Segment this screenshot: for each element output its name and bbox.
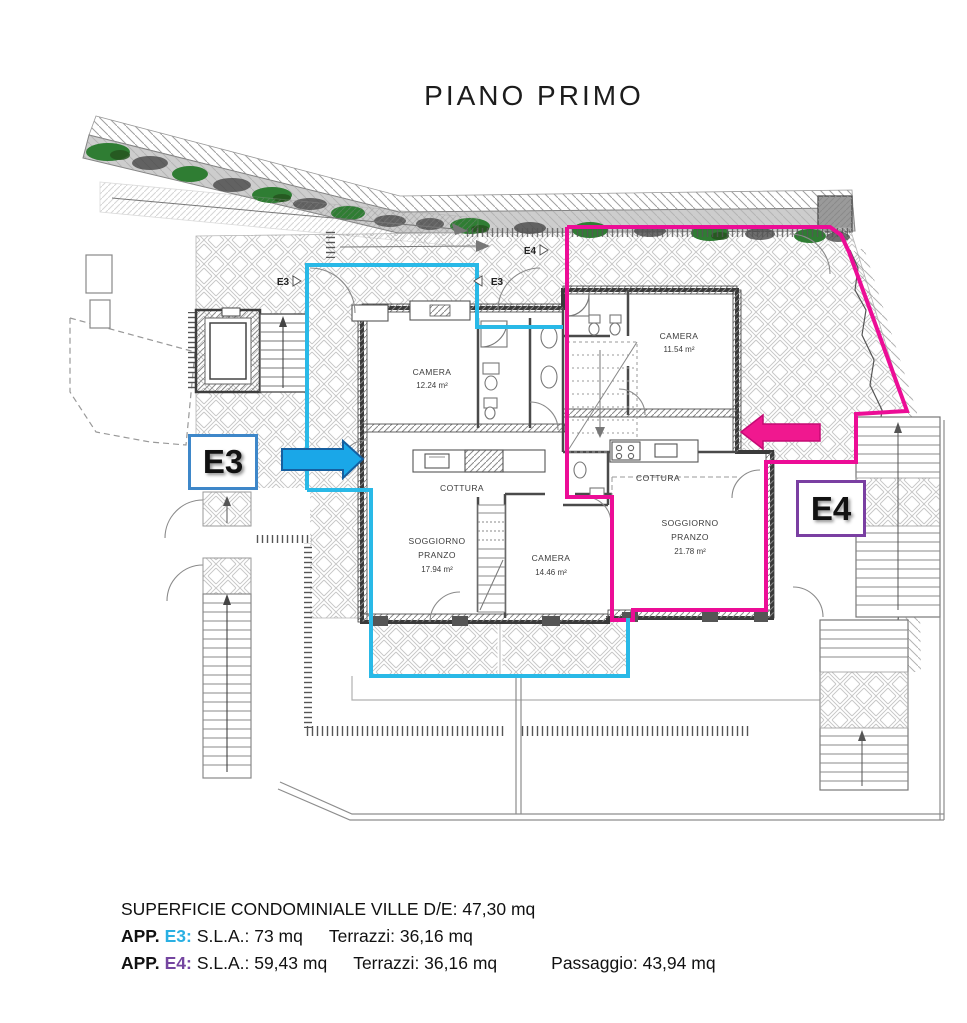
room-area-e4-camera: 11.54 m² [664, 345, 695, 354]
terrace-edge-strip [467, 228, 848, 237]
kitchen-e4 [610, 440, 698, 462]
legend-e3-terrazzi: Terrazzi: 36,16 mq [329, 926, 473, 946]
room-label-e3-soggiorno-1: SOGGIORNO [409, 536, 466, 546]
unit-box-e3: E3 [188, 434, 258, 490]
room-label-e4-soggiorno-1: SOGGIORNO [662, 518, 719, 528]
legend-app-label-e3: APP. [121, 926, 160, 946]
stairs-e3-internal [478, 505, 505, 612]
room-area-e3-camera1: 12.24 m² [416, 381, 448, 390]
room-area-e3-soggiorno: 17.94 m² [421, 565, 453, 574]
stairs-upper-left [260, 314, 306, 392]
legend-line-e3: APP.E3:S.L.A.: 73 mqTerrazzi: 36,16 mq [121, 923, 721, 950]
room-label-e3-camera1: CAMERA [413, 367, 452, 377]
room-area-e4-soggiorno: 21.78 m² [674, 547, 706, 556]
room-area-e3-camera2: 14.46 m² [535, 568, 567, 577]
legend: SUPERFICIE CONDOMINIALE VILLE D/E: 47,30… [121, 896, 721, 977]
legend-app-label-e4: APP. [121, 953, 160, 973]
legend-e3-sla: S.L.A.: 73 mq [197, 926, 303, 946]
marker-e3-left: E3 [277, 277, 290, 288]
legend-e4-terrazzi: Terrazzi: 36,16 mq [353, 953, 497, 973]
kitchen-e3 [413, 450, 545, 472]
floor-plan-page: PIANO PRIMO [0, 0, 967, 1023]
marker-e3-right: E3 [491, 277, 504, 288]
room-label-e3-soggiorno-2: PRANZO [418, 550, 456, 560]
legend-e4-passaggio: Passaggio: 43,94 mq [551, 953, 715, 973]
legend-line-condominiale: SUPERFICIE CONDOMINIALE VILLE D/E: 47,30… [121, 896, 721, 923]
legend-e4-sla: S.L.A.: 59,43 mq [197, 953, 327, 973]
room-label-e4-camera: CAMERA [660, 331, 699, 341]
marker-e4-top: E4 [524, 246, 537, 257]
neighbor-structure [70, 255, 195, 445]
room-label-e3-cottura: COTTURA [440, 483, 484, 493]
unit-box-e4: E4 [796, 480, 866, 537]
elevator [188, 308, 260, 392]
legend-line-e4: APP.E4:S.L.A.: 59,43 mqTerrazzi: 36,16 m… [121, 950, 721, 977]
room-label-e4-cottura: COTTURA [636, 473, 680, 483]
room-label-e4-soggiorno-2: PRANZO [671, 532, 709, 542]
legend-e4-unit: E4: [165, 953, 192, 973]
legend-e3-unit: E3: [165, 926, 192, 946]
room-label-e3-camera2: CAMERA [532, 553, 571, 563]
